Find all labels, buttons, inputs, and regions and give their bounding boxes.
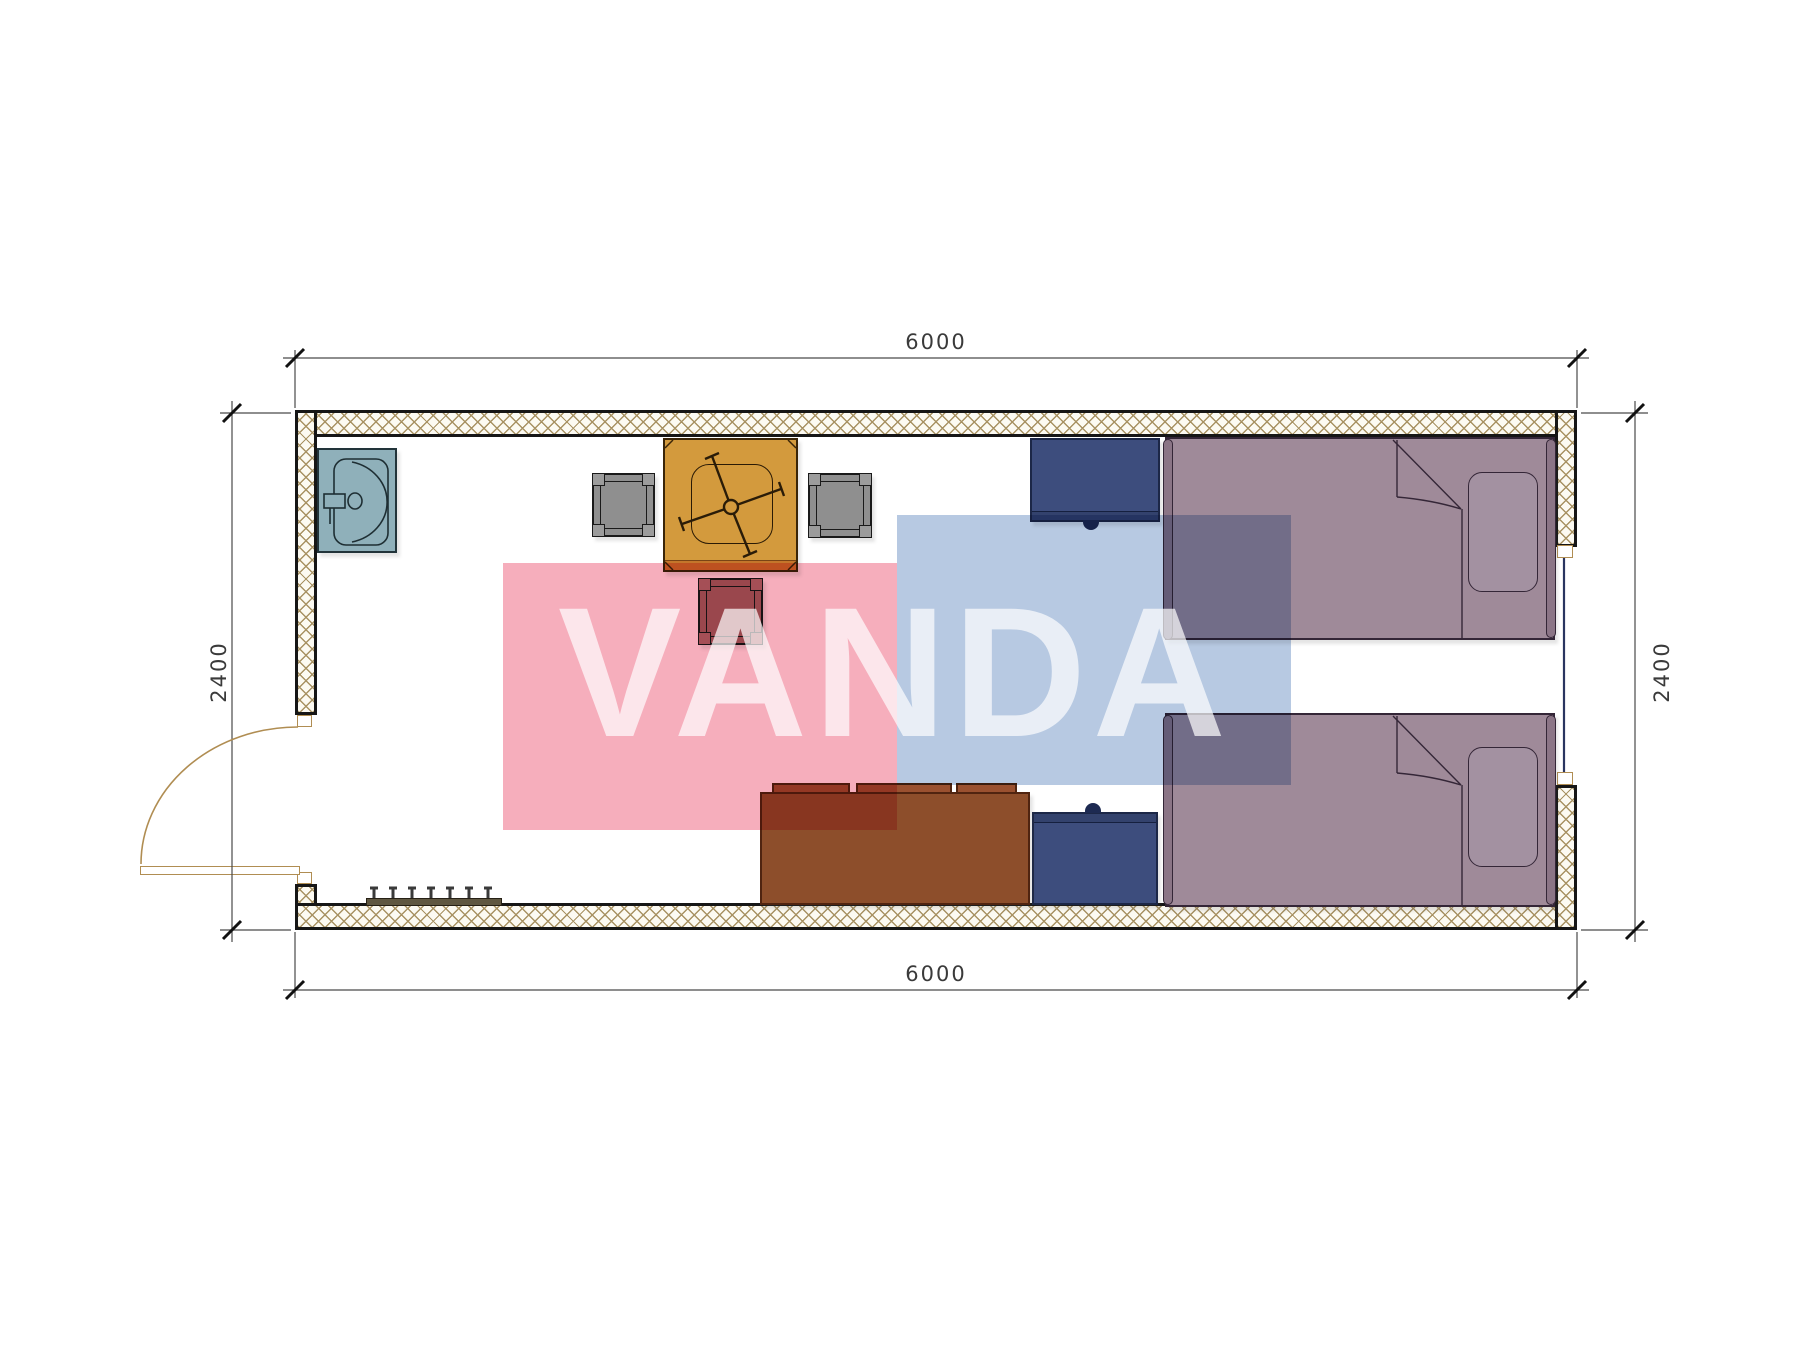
dimension-label-left: 2400 [207,622,231,722]
nightstand-bottom-knob [1085,803,1101,813]
bed-headboard [1546,715,1556,905]
nightstand-top [1030,438,1160,522]
wall-right-lower [1555,785,1577,930]
watermark-text: VANDA [535,553,1255,793]
door-leaf [140,866,300,875]
wall-left-upper [295,410,317,715]
pillow-bottom-bed [1468,747,1538,867]
table-top-outline [691,464,773,544]
dimension-label-top: 6000 [886,330,986,354]
dimension-label-right: 2400 [1650,622,1674,722]
coat-rack-bar [366,898,502,906]
square-table [663,438,798,572]
dimension-right [1581,401,1648,942]
door-frame-top [297,715,312,727]
dining-chair-right [808,473,872,538]
bed-headboard [1546,439,1556,638]
sink [317,448,397,553]
wall-bottom [295,903,1577,930]
door-swing-arc [141,727,298,864]
wall-right-upper [1555,410,1577,547]
wall-top [295,410,1577,437]
pillow-top-bed [1468,472,1538,592]
window-frame-top [1557,545,1573,558]
dining-chair-left [592,473,655,537]
dimension-label-bottom: 6000 [886,962,986,986]
coat-rack-hooks [370,888,492,898]
window-frame-bottom [1557,772,1573,785]
dimension-top [283,349,1589,408]
floor-plan-canvas: 6000 6000 2400 2400 VANDA [0,0,1800,1350]
nightstand-bottom [1032,812,1158,905]
